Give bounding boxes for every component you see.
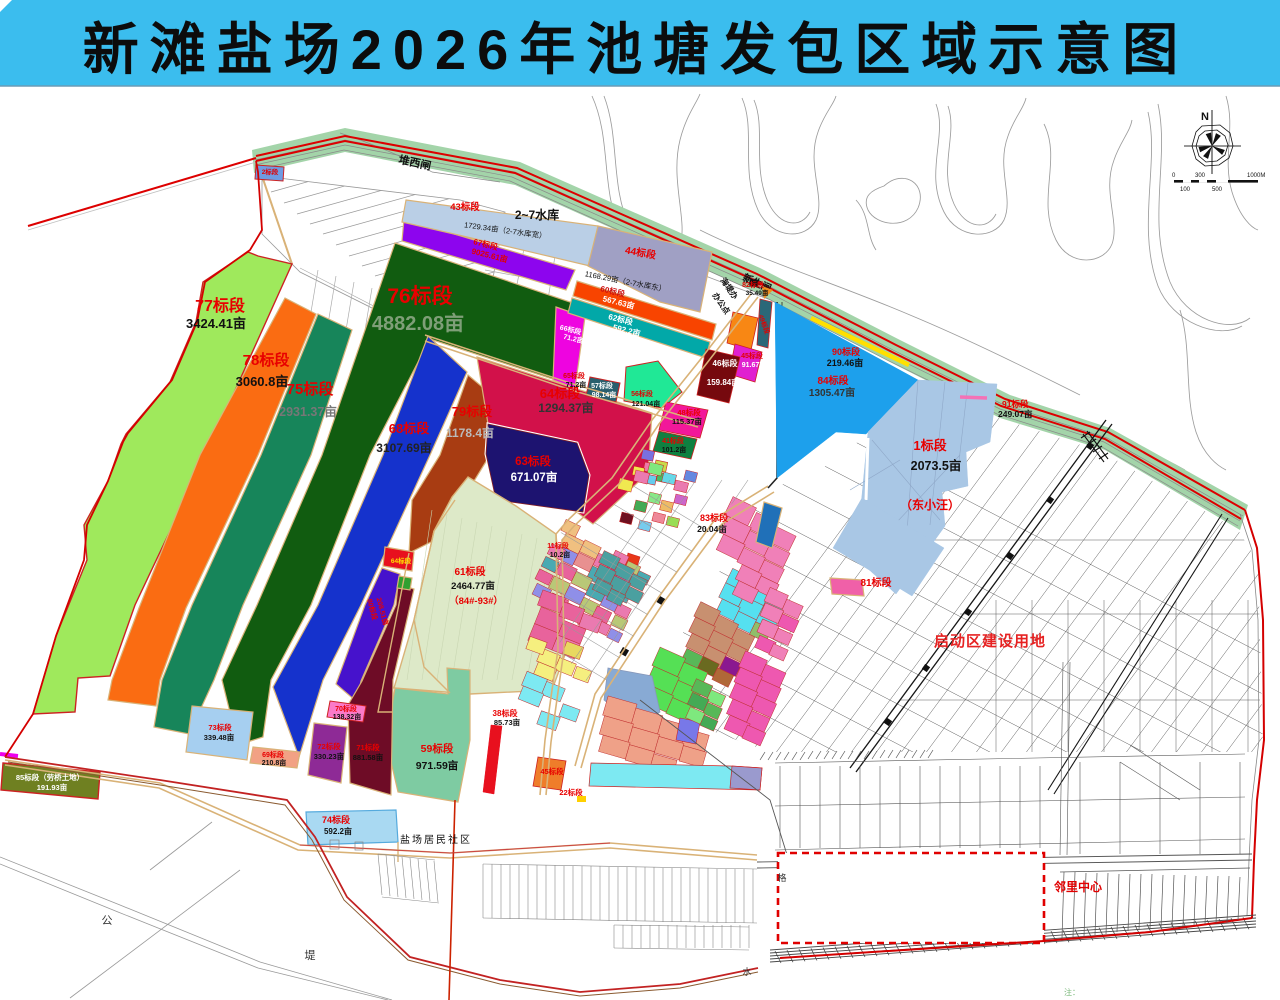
- svg-text:2073.5亩: 2073.5亩: [911, 458, 962, 473]
- svg-text:45标段: 45标段: [741, 351, 763, 360]
- svg-text:74标段: 74标段: [322, 814, 351, 825]
- svg-text:0: 0: [1172, 173, 1176, 179]
- svg-text:57标段: 57标段: [591, 381, 613, 390]
- svg-text:48标段: 48标段: [677, 407, 701, 417]
- svg-text:2464.77亩: 2464.77亩: [451, 580, 495, 592]
- svg-text:300: 300: [1195, 173, 1206, 179]
- svg-text:75标段: 75标段: [287, 380, 334, 398]
- svg-text:69标段: 69标段: [262, 750, 284, 759]
- svg-text:注：: 注：: [1064, 987, 1080, 997]
- svg-text:91.67亩: 91.67亩: [742, 360, 767, 369]
- svg-text:22标段: 22标段: [559, 787, 583, 797]
- svg-text:2~7水库: 2~7水库: [515, 207, 559, 222]
- svg-text:公: 公: [102, 915, 113, 927]
- svg-text:64标段: 64标段: [391, 556, 412, 565]
- svg-text:38标段: 38标段: [493, 708, 518, 718]
- svg-text:210.8亩: 210.8亩: [262, 758, 287, 767]
- svg-text:N: N: [1201, 111, 1209, 123]
- svg-text:10.2亩: 10.2亩: [550, 550, 571, 559]
- svg-text:43标段: 43标段: [450, 201, 480, 213]
- svg-text:1294.37亩: 1294.37亩: [538, 400, 593, 415]
- svg-text:3424.41亩: 3424.41亩: [186, 316, 246, 331]
- svg-text:83标段: 83标段: [700, 512, 729, 523]
- svg-text:191.93亩: 191.93亩: [37, 782, 68, 792]
- svg-text:盐场居民社区: 盐场居民社区: [400, 833, 472, 846]
- svg-text:84标段: 84标段: [817, 374, 848, 387]
- svg-text:98.14亩: 98.14亩: [592, 390, 617, 399]
- svg-text:1178.4亩: 1178.4亩: [446, 425, 494, 440]
- svg-text:65标段: 65标段: [563, 371, 585, 380]
- svg-text:水: 水: [742, 966, 751, 977]
- svg-text:11标段: 11标段: [547, 541, 568, 550]
- svg-text:63标段: 63标段: [515, 454, 551, 468]
- svg-text:671.07亩: 671.07亩: [511, 470, 558, 484]
- svg-text:46标段: 46标段: [713, 358, 738, 368]
- svg-text:71标段: 71标段: [356, 742, 380, 752]
- svg-text:85.73亩: 85.73亩: [494, 717, 521, 727]
- svg-text:79标段: 79标段: [452, 404, 492, 419]
- svg-text:249.07亩: 249.07亩: [998, 409, 1033, 419]
- svg-text:启动区建设用地: 启动区建设用地: [934, 632, 1046, 650]
- svg-text:格: 格: [777, 872, 786, 883]
- svg-text:500: 500: [1212, 187, 1223, 193]
- svg-text:61标段: 61标段: [454, 565, 485, 578]
- svg-text:1305.47亩: 1305.47亩: [809, 386, 855, 399]
- svg-text:81标段: 81标段: [860, 576, 891, 589]
- svg-text:77标段: 77标段: [195, 296, 246, 315]
- svg-text:70标段: 70标段: [335, 704, 357, 713]
- svg-text:91标段: 91标段: [1002, 399, 1029, 409]
- svg-text:138.32亩: 138.32亩: [333, 712, 361, 721]
- svg-text:2标段: 2标段: [262, 167, 279, 176]
- svg-text:115.37亩: 115.37亩: [672, 416, 703, 426]
- svg-text:35.49亩: 35.49亩: [746, 288, 769, 297]
- svg-text:2931.37亩: 2931.37亩: [279, 404, 337, 419]
- svg-text:121.04亩: 121.04亩: [632, 399, 660, 408]
- svg-text:（84#-93#）: （84#-93#）: [449, 595, 503, 607]
- svg-text:71.2亩: 71.2亩: [566, 380, 587, 389]
- svg-text:971.59亩: 971.59亩: [416, 759, 459, 772]
- svg-text:219.46亩: 219.46亩: [827, 357, 864, 368]
- svg-text:1000M: 1000M: [1247, 173, 1265, 179]
- svg-text:堤: 堤: [305, 949, 316, 962]
- svg-text:（东小汪）: （东小汪）: [900, 497, 960, 512]
- svg-text:330.23亩: 330.23亩: [314, 751, 345, 761]
- svg-text:76标段: 76标段: [387, 284, 452, 308]
- svg-text:41标段: 41标段: [662, 436, 684, 445]
- svg-text:45标段: 45标段: [540, 766, 564, 776]
- svg-text:68标段: 68标段: [389, 421, 429, 436]
- svg-text:59标段: 59标段: [421, 742, 454, 755]
- svg-text:85标段（劳桥土地）: 85标段（劳桥土地）: [16, 772, 84, 782]
- svg-text:339.48亩: 339.48亩: [204, 732, 235, 742]
- svg-text:592.2亩: 592.2亩: [324, 826, 352, 836]
- svg-text:101.2亩: 101.2亩: [662, 445, 687, 454]
- svg-text:4882.08亩: 4882.08亩: [372, 311, 464, 335]
- svg-text:100: 100: [1180, 187, 1191, 193]
- svg-text:159.84亩: 159.84亩: [707, 377, 739, 387]
- svg-text:20.04亩: 20.04亩: [697, 524, 727, 534]
- svg-text:78标段: 78标段: [243, 351, 290, 369]
- svg-text:1标段: 1标段: [913, 438, 946, 453]
- svg-text:881.58亩: 881.58亩: [353, 752, 384, 762]
- svg-text:72标段: 72标段: [317, 741, 341, 751]
- svg-text:3060.8亩: 3060.8亩: [236, 374, 289, 389]
- svg-text:73标段: 73标段: [208, 722, 232, 732]
- svg-text:90标段: 90标段: [832, 346, 861, 357]
- svg-text:56标段: 56标段: [631, 389, 653, 398]
- svg-text:82标段: 82标段: [742, 280, 764, 289]
- svg-text:3107.69亩: 3107.69亩: [376, 440, 431, 455]
- svg-text:新滩盐场2026年池塘发包区域示意图: 新滩盐场2026年池塘发包区域示意图: [83, 18, 1190, 81]
- svg-text:邻里中心: 邻里中心: [1053, 879, 1102, 894]
